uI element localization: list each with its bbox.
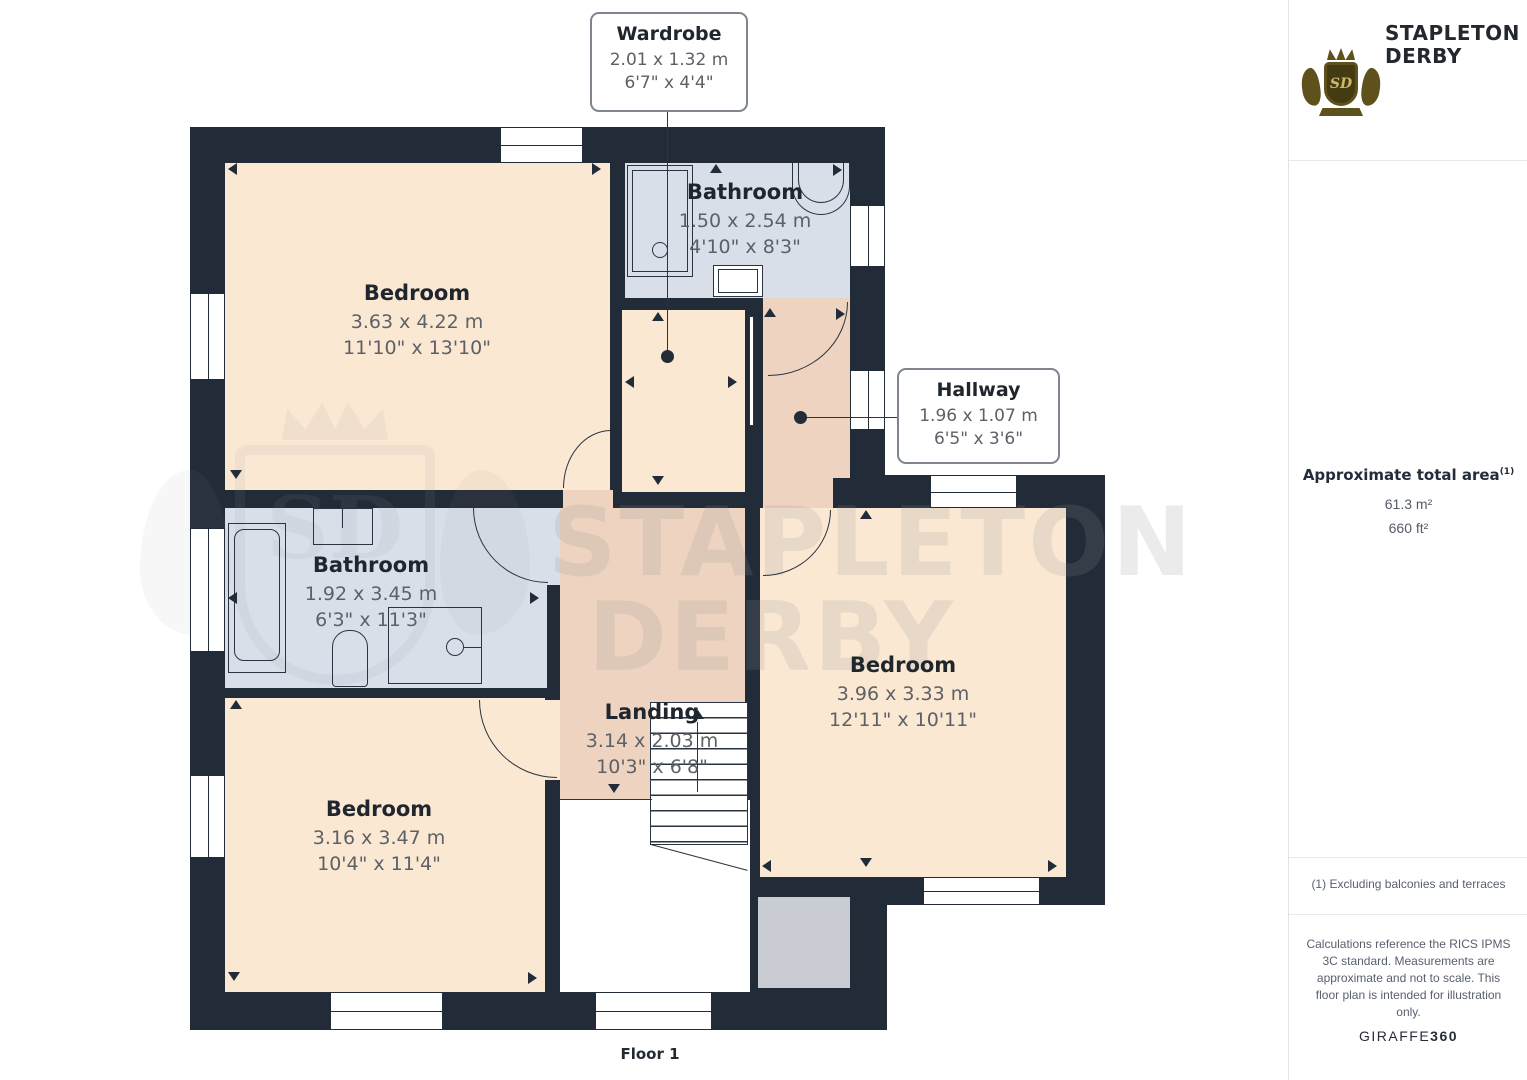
wardrobe-leader-dot bbox=[661, 350, 674, 363]
crest-base-icon bbox=[1319, 108, 1363, 116]
dimension-arrow-icon bbox=[230, 700, 242, 709]
window bbox=[923, 877, 1040, 905]
balcony bbox=[758, 897, 850, 988]
shower-head-icon bbox=[446, 638, 464, 656]
credit-suffix: 360 bbox=[1430, 1028, 1458, 1044]
area-title: Approximate total area(1) bbox=[1289, 466, 1527, 484]
exterior-cutout bbox=[887, 905, 1105, 1030]
brand-logo: SD bbox=[1299, 48, 1383, 120]
room-imperial: 10'3" x 6'8" bbox=[527, 754, 777, 780]
dimension-arrow-icon bbox=[228, 592, 237, 604]
room-name: Bathroom bbox=[246, 553, 496, 577]
toilet-fixture bbox=[332, 630, 368, 687]
area-footnote: (1) Excluding balconies and terraces bbox=[1289, 877, 1527, 891]
hallway-leader-line bbox=[806, 417, 897, 418]
dimension-arrow-icon bbox=[762, 860, 771, 872]
brand-name: STAPLETON DERBY bbox=[1385, 22, 1520, 68]
doorway-gap bbox=[563, 490, 613, 508]
dimension-arrow-icon bbox=[528, 972, 537, 984]
dimension-arrow-icon bbox=[228, 163, 237, 175]
door-leaf bbox=[749, 316, 754, 426]
sidebar-divider bbox=[1289, 914, 1527, 915]
callout-title: Wardrobe bbox=[592, 23, 746, 45]
crest-lion-icon bbox=[1299, 67, 1322, 107]
brand-name-line1: STAPLETON bbox=[1385, 22, 1520, 45]
room-name: Bedroom bbox=[254, 797, 504, 821]
room-name: Landing bbox=[527, 700, 777, 724]
area-metric: 61.3 m² bbox=[1289, 496, 1527, 512]
callout-metric: 2.01 x 1.32 m bbox=[592, 49, 746, 72]
dimension-arrow-icon bbox=[228, 972, 240, 981]
label-landing: Landing 3.14 x 2.03 m 10'3" x 6'8" bbox=[527, 700, 777, 780]
room-name: Bathroom bbox=[620, 180, 870, 204]
callout-title: Hallway bbox=[899, 379, 1058, 401]
crest-lion-icon bbox=[1359, 67, 1382, 107]
dimension-arrow-icon bbox=[592, 163, 601, 175]
floor-caption: Floor 1 bbox=[560, 1045, 740, 1063]
room-name: Bedroom bbox=[267, 281, 567, 305]
callout-metric: 1.96 x 1.07 m bbox=[899, 405, 1058, 428]
window bbox=[500, 127, 583, 163]
window bbox=[850, 370, 885, 430]
room-name: Bedroom bbox=[778, 653, 1028, 677]
window bbox=[595, 992, 712, 1030]
dimension-arrow-icon bbox=[860, 510, 872, 519]
callout-imperial: 6'7" x 4'4" bbox=[592, 72, 746, 95]
dimension-arrow-icon bbox=[1048, 860, 1057, 872]
sink-tap-line bbox=[342, 508, 343, 528]
label-bathroom-top: Bathroom 1.50 x 2.54 m 4'10" x 8'3" bbox=[620, 180, 870, 260]
room-metric: 3.16 x 3.47 m bbox=[254, 825, 504, 851]
info-sidebar: SD STAPLETON DERBY Approximate total are… bbox=[1288, 0, 1527, 1080]
dimension-arrow-icon bbox=[608, 784, 620, 793]
sidebar-divider bbox=[1289, 857, 1527, 858]
crest-shield-icon: SD bbox=[1324, 62, 1358, 106]
window bbox=[190, 293, 225, 380]
sink-fixture bbox=[313, 508, 373, 545]
floorplan-page: STAPLETON DERBY SD bbox=[0, 0, 1527, 1080]
label-bedroom-top-left: Bedroom 3.63 x 4.22 m 11'10" x 13'10" bbox=[267, 281, 567, 361]
room-metric: 3.63 x 4.22 m bbox=[267, 309, 567, 335]
landing-void-line bbox=[560, 799, 652, 800]
room-metric: 3.14 x 2.03 m bbox=[527, 728, 777, 754]
room-imperial: 11'10" x 13'10" bbox=[267, 335, 567, 361]
dimension-arrow-icon bbox=[625, 376, 634, 388]
doorway-gap bbox=[547, 508, 560, 585]
dimension-arrow-icon bbox=[530, 592, 539, 604]
callout-wardrobe: Wardrobe 2.01 x 1.32 m 6'7" x 4'4" bbox=[590, 12, 748, 112]
room-wardrobe bbox=[622, 310, 745, 492]
callout-imperial: 6'5" x 3'6" bbox=[899, 428, 1058, 451]
dimension-arrow-icon bbox=[230, 470, 242, 479]
window bbox=[930, 475, 1017, 508]
window bbox=[330, 992, 443, 1030]
dimension-arrow-icon bbox=[860, 858, 872, 867]
area-title-text: Approximate total area bbox=[1303, 466, 1500, 484]
room-imperial: 6'3" x 11'3" bbox=[246, 607, 496, 633]
dimension-arrow-icon bbox=[836, 308, 845, 320]
dimension-arrow-icon bbox=[652, 476, 664, 485]
dimension-arrow-icon bbox=[764, 308, 776, 317]
sidebar-divider bbox=[1289, 160, 1527, 161]
dimension-arrow-icon bbox=[833, 164, 842, 176]
dimension-arrow-icon bbox=[710, 164, 722, 173]
area-footnote-marker: (1) bbox=[1500, 467, 1515, 477]
window bbox=[190, 775, 225, 858]
credit-logo: GIRAFFE360 bbox=[1289, 1028, 1527, 1044]
crest-crown-icon bbox=[1327, 48, 1355, 60]
dimension-arrow-icon bbox=[728, 376, 737, 388]
area-imperial: 660 ft² bbox=[1289, 520, 1527, 536]
disclaimer: Calculations reference the RICS IPMS 3C … bbox=[1306, 936, 1511, 1021]
callout-hallway: Hallway 1.96 x 1.07 m 6'5" x 3'6" bbox=[897, 368, 1060, 464]
room-imperial: 10'4" x 11'4" bbox=[254, 851, 504, 877]
shower-head-line bbox=[464, 647, 482, 648]
credit-name: GIRAFFE bbox=[1359, 1028, 1430, 1044]
dimension-arrow-icon bbox=[652, 312, 664, 321]
label-bathroom-mid: Bathroom 1.92 x 3.45 m 6'3" x 11'3" bbox=[246, 553, 496, 633]
toilet-fixture-inner bbox=[718, 269, 758, 293]
label-bedroom-bottom-left: Bedroom 3.16 x 3.47 m 10'4" x 11'4" bbox=[254, 797, 504, 877]
label-bedroom-right: Bedroom 3.96 x 3.33 m 12'11" x 10'11" bbox=[778, 653, 1028, 733]
floor-plan: STAPLETON DERBY SD bbox=[0, 0, 1288, 1080]
brand-name-line2: DERBY bbox=[1385, 45, 1520, 68]
room-imperial: 12'11" x 10'11" bbox=[778, 707, 1028, 733]
window bbox=[190, 528, 225, 652]
room-metric: 1.50 x 2.54 m bbox=[620, 208, 870, 234]
doorway-gap bbox=[763, 478, 833, 508]
hallway-leader-dot bbox=[794, 411, 807, 424]
room-metric: 1.92 x 3.45 m bbox=[246, 581, 496, 607]
room-imperial: 4'10" x 8'3" bbox=[620, 234, 870, 260]
room-metric: 3.96 x 3.33 m bbox=[778, 681, 1028, 707]
